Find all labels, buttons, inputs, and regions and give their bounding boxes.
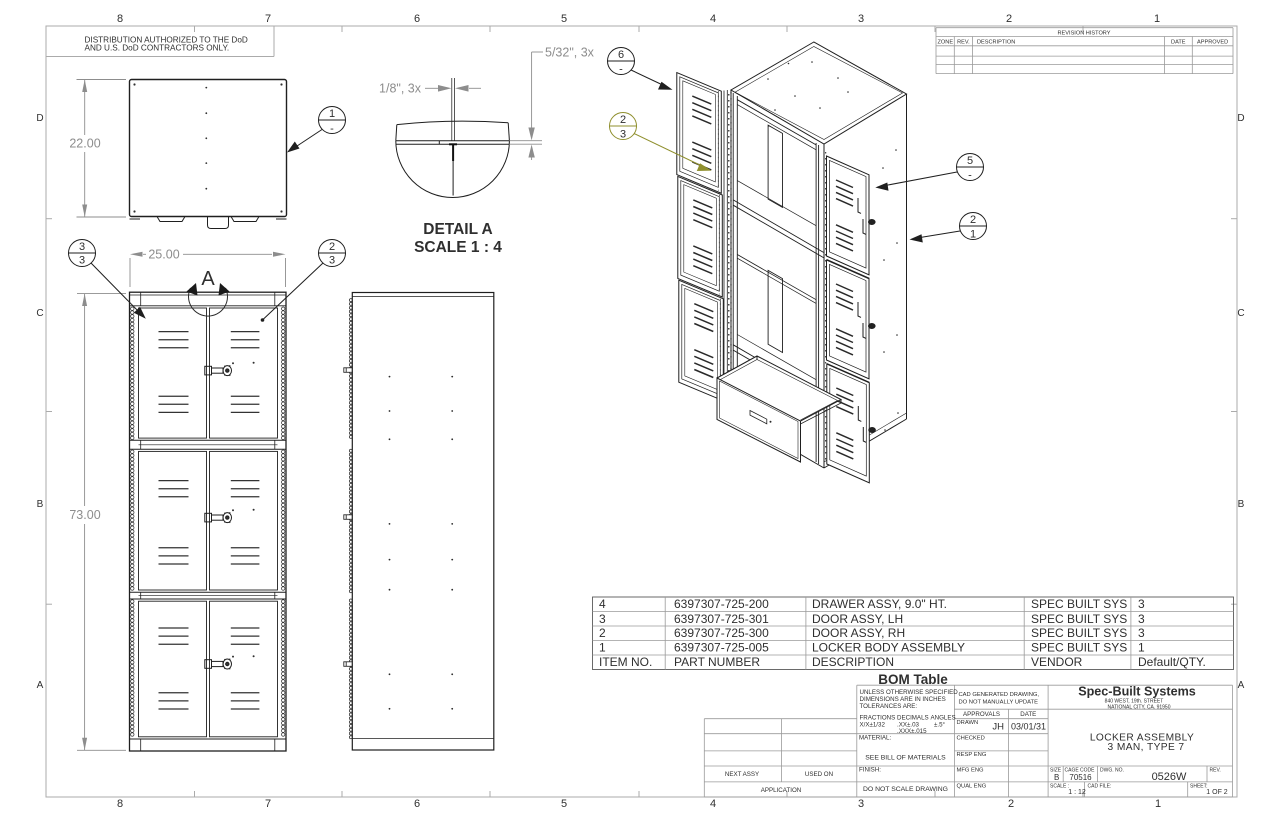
svg-text:3: 3 bbox=[79, 255, 85, 267]
svg-text:CAD FILE:: CAD FILE: bbox=[1088, 784, 1112, 790]
svg-text:3: 3 bbox=[79, 241, 85, 253]
svg-text:DESCRIPTION: DESCRIPTION bbox=[812, 655, 894, 669]
svg-text:DOOR ASSY, LH: DOOR ASSY, LH bbox=[812, 612, 903, 626]
svg-text:4: 4 bbox=[710, 798, 716, 810]
svg-text:DRAWER ASSY, 9.0" HT.: DRAWER ASSY, 9.0" HT. bbox=[812, 597, 947, 611]
svg-text:2: 2 bbox=[599, 626, 606, 640]
svg-text:2: 2 bbox=[1008, 798, 1014, 810]
svg-text:2: 2 bbox=[970, 214, 976, 226]
svg-text:BOM Table: BOM Table bbox=[878, 672, 948, 687]
svg-text:B: B bbox=[1054, 773, 1059, 782]
svg-text:3: 3 bbox=[620, 129, 626, 141]
svg-text:3: 3 bbox=[1138, 597, 1145, 611]
svg-text:3: 3 bbox=[599, 612, 606, 626]
svg-text:CAD GENERATED DRAWING,: CAD GENERATED DRAWING, bbox=[959, 692, 1040, 698]
svg-text:TOLERANCES ARE:: TOLERANCES ARE: bbox=[860, 703, 918, 710]
svg-text:2: 2 bbox=[329, 241, 335, 253]
svg-text:PART NUMBER: PART NUMBER bbox=[674, 655, 760, 669]
svg-text:FRACTIONS: FRACTIONS bbox=[860, 715, 896, 722]
svg-text:7: 7 bbox=[265, 13, 271, 25]
svg-text:1: 1 bbox=[329, 108, 335, 120]
svg-text:A: A bbox=[37, 680, 44, 691]
svg-text:6: 6 bbox=[414, 13, 420, 25]
svg-text:SEE BILL OF MATERIALS: SEE BILL OF MATERIALS bbox=[865, 755, 946, 762]
svg-text:MFG ENG: MFG ENG bbox=[957, 768, 985, 774]
svg-text:DETAIL A: DETAIL A bbox=[423, 221, 492, 238]
svg-text:DATE: DATE bbox=[1020, 711, 1036, 718]
svg-text:AND U.S. DoD CONTRACTORS ONLY.: AND U.S. DoD CONTRACTORS ONLY. bbox=[85, 44, 230, 53]
svg-text:Spec-Built Systems: Spec-Built Systems bbox=[1078, 685, 1196, 699]
svg-text:-: - bbox=[330, 123, 334, 135]
svg-text:3: 3 bbox=[858, 798, 864, 810]
svg-text:C: C bbox=[36, 308, 43, 319]
svg-text:±.5°: ±.5° bbox=[934, 722, 946, 729]
svg-text:B: B bbox=[37, 499, 44, 510]
svg-text:6397307-725-005: 6397307-725-005 bbox=[674, 641, 769, 655]
svg-text:ZONE: ZONE bbox=[938, 39, 954, 45]
svg-text:APPROVED: APPROVED bbox=[1197, 39, 1228, 45]
svg-text:DESCRIPTION: DESCRIPTION bbox=[977, 39, 1015, 45]
svg-text:REV.: REV. bbox=[1210, 768, 1221, 774]
svg-text:APPLICATION: APPLICATION bbox=[761, 787, 801, 794]
svg-text:D: D bbox=[1237, 113, 1244, 124]
svg-text:-: - bbox=[619, 64, 623, 76]
svg-text:UNLESS OTHERWISE SPECIFIED: UNLESS OTHERWISE SPECIFIED bbox=[860, 689, 959, 696]
svg-text:D: D bbox=[36, 113, 43, 124]
svg-text:2: 2 bbox=[620, 114, 626, 126]
svg-text:2: 2 bbox=[1006, 13, 1012, 25]
svg-text:APPROVALS: APPROVALS bbox=[963, 711, 1000, 718]
svg-text:SCALE :: SCALE : bbox=[1050, 784, 1069, 790]
svg-text:ANGLES: ANGLES bbox=[931, 715, 956, 722]
svg-text:DWG. NO.: DWG. NO. bbox=[1100, 768, 1124, 774]
svg-text:SPEC BUILT SYS: SPEC BUILT SYS bbox=[1031, 626, 1127, 640]
svg-text:3: 3 bbox=[858, 13, 864, 25]
svg-text:JH: JH bbox=[992, 722, 1004, 733]
svg-text:1/8", 3x: 1/8", 3x bbox=[379, 82, 422, 96]
svg-text:4: 4 bbox=[599, 597, 606, 611]
svg-text:5/32", 3x: 5/32", 3x bbox=[545, 46, 595, 60]
svg-text:SCALE 1 : 4: SCALE 1 : 4 bbox=[414, 239, 502, 256]
svg-text:DECIMALS: DECIMALS bbox=[897, 715, 929, 722]
svg-text:REV.: REV. bbox=[957, 39, 970, 45]
svg-text:MATERIAL:: MATERIAL: bbox=[859, 735, 891, 742]
svg-text:25.00: 25.00 bbox=[148, 248, 179, 262]
svg-text:SPEC BUILT SYS: SPEC BUILT SYS bbox=[1031, 641, 1127, 655]
svg-text:DRAWN: DRAWN bbox=[957, 720, 979, 726]
svg-text:1: 1 bbox=[599, 641, 606, 655]
svg-text:A: A bbox=[201, 268, 215, 290]
svg-text:3 MAN, TYPE 7: 3 MAN, TYPE 7 bbox=[1108, 742, 1185, 753]
svg-text:1 : 12: 1 : 12 bbox=[1068, 789, 1086, 796]
svg-text:6397307-725-300: 6397307-725-300 bbox=[674, 626, 769, 640]
svg-text:6397307-725-301: 6397307-725-301 bbox=[674, 612, 769, 626]
svg-text:QUAL ENG: QUAL ENG bbox=[957, 784, 987, 790]
svg-text:LOCKER BODY ASSEMBLY: LOCKER BODY ASSEMBLY bbox=[812, 641, 965, 655]
svg-text:DIMENSIONS ARE IN INCHES: DIMENSIONS ARE IN INCHES bbox=[860, 696, 946, 703]
svg-text:8: 8 bbox=[117, 798, 123, 810]
svg-text:USED ON: USED ON bbox=[805, 771, 833, 778]
svg-text:1: 1 bbox=[1138, 641, 1145, 655]
svg-text:C: C bbox=[1237, 308, 1244, 319]
svg-text:3: 3 bbox=[329, 255, 335, 267]
svg-text:SHEET:: SHEET: bbox=[1190, 784, 1208, 790]
svg-text:CHECKED: CHECKED bbox=[957, 736, 985, 742]
svg-text:1: 1 bbox=[1155, 798, 1161, 810]
svg-text:4: 4 bbox=[710, 13, 716, 25]
svg-text:RESP ENG: RESP ENG bbox=[957, 752, 987, 758]
svg-text:22.00: 22.00 bbox=[69, 137, 100, 151]
svg-text:1: 1 bbox=[970, 229, 976, 241]
svg-text:DO NOT SCALE DRAWING: DO NOT SCALE DRAWING bbox=[863, 786, 948, 793]
svg-text:5: 5 bbox=[561, 798, 567, 810]
svg-text:NATIONAL CITY, CA. 91950: NATIONAL CITY, CA. 91950 bbox=[1108, 704, 1171, 710]
svg-text:7: 7 bbox=[265, 798, 271, 810]
svg-text:VENDOR: VENDOR bbox=[1031, 655, 1083, 669]
svg-text:6397307-725-200: 6397307-725-200 bbox=[674, 597, 769, 611]
svg-text:.XXX±.015: .XXX±.015 bbox=[897, 728, 927, 735]
svg-text:70516: 70516 bbox=[1069, 773, 1092, 782]
svg-text:FINISH:: FINISH: bbox=[859, 767, 881, 774]
svg-text:-: - bbox=[968, 170, 972, 182]
svg-text:DOOR ASSY, RH: DOOR ASSY, RH bbox=[812, 626, 905, 640]
svg-text:Default/QTY.: Default/QTY. bbox=[1138, 655, 1206, 669]
svg-text:REVISION HISTORY: REVISION HISTORY bbox=[1058, 30, 1111, 36]
svg-text:SPEC BUILT SYS: SPEC BUILT SYS bbox=[1031, 612, 1127, 626]
svg-text:DO NOT MANUALLY UPDATE: DO NOT MANUALLY UPDATE bbox=[959, 700, 1039, 706]
svg-text:5: 5 bbox=[967, 155, 973, 167]
svg-text:3: 3 bbox=[1138, 612, 1145, 626]
svg-text:NEXT ASSY: NEXT ASSY bbox=[725, 771, 759, 778]
svg-text:6: 6 bbox=[618, 49, 624, 61]
svg-text:A: A bbox=[1238, 680, 1245, 691]
svg-text:ITEM NO.: ITEM NO. bbox=[599, 655, 652, 669]
svg-text:5: 5 bbox=[561, 13, 567, 25]
svg-text:DATE: DATE bbox=[1171, 39, 1186, 45]
svg-text:1: 1 bbox=[1154, 13, 1160, 25]
svg-text:0526W: 0526W bbox=[1152, 771, 1187, 783]
svg-text:03/01/31: 03/01/31 bbox=[1011, 722, 1046, 732]
svg-text:1 OF 2: 1 OF 2 bbox=[1206, 789, 1228, 796]
svg-text:73.00: 73.00 bbox=[69, 508, 100, 522]
svg-text:3: 3 bbox=[1138, 626, 1145, 640]
svg-text:X/X±1/32: X/X±1/32 bbox=[860, 722, 886, 729]
svg-text:B: B bbox=[1238, 499, 1245, 510]
svg-text:6: 6 bbox=[414, 798, 420, 810]
svg-text:8: 8 bbox=[117, 13, 123, 25]
svg-text:SPEC BUILT SYS: SPEC BUILT SYS bbox=[1031, 597, 1127, 611]
